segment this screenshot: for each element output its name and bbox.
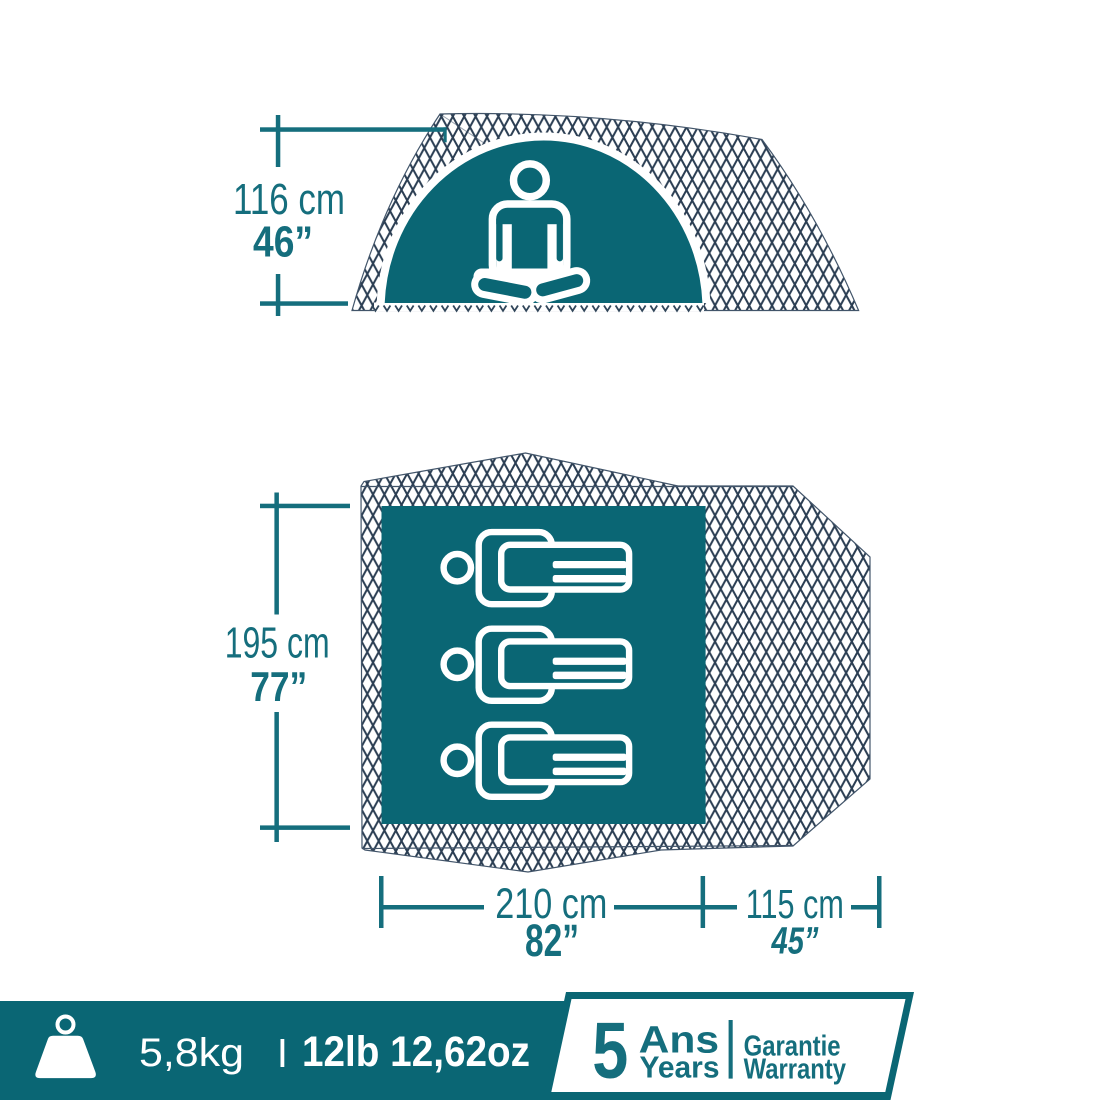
svg-text:77”: 77” (250, 663, 307, 710)
svg-text:45”: 45” (771, 921, 819, 963)
svg-text:Years: Years (640, 1049, 720, 1084)
svg-text:12lb 12,62oz: 12lb 12,62oz (302, 1028, 530, 1076)
svg-text:5,8kg: 5,8kg (139, 1031, 244, 1075)
svg-text:Warranty: Warranty (744, 1054, 846, 1086)
svg-text:46”: 46” (253, 218, 313, 267)
svg-text:5: 5 (592, 1005, 628, 1094)
svg-text:82”: 82” (525, 915, 579, 966)
svg-text:195 cm: 195 cm (225, 619, 330, 668)
